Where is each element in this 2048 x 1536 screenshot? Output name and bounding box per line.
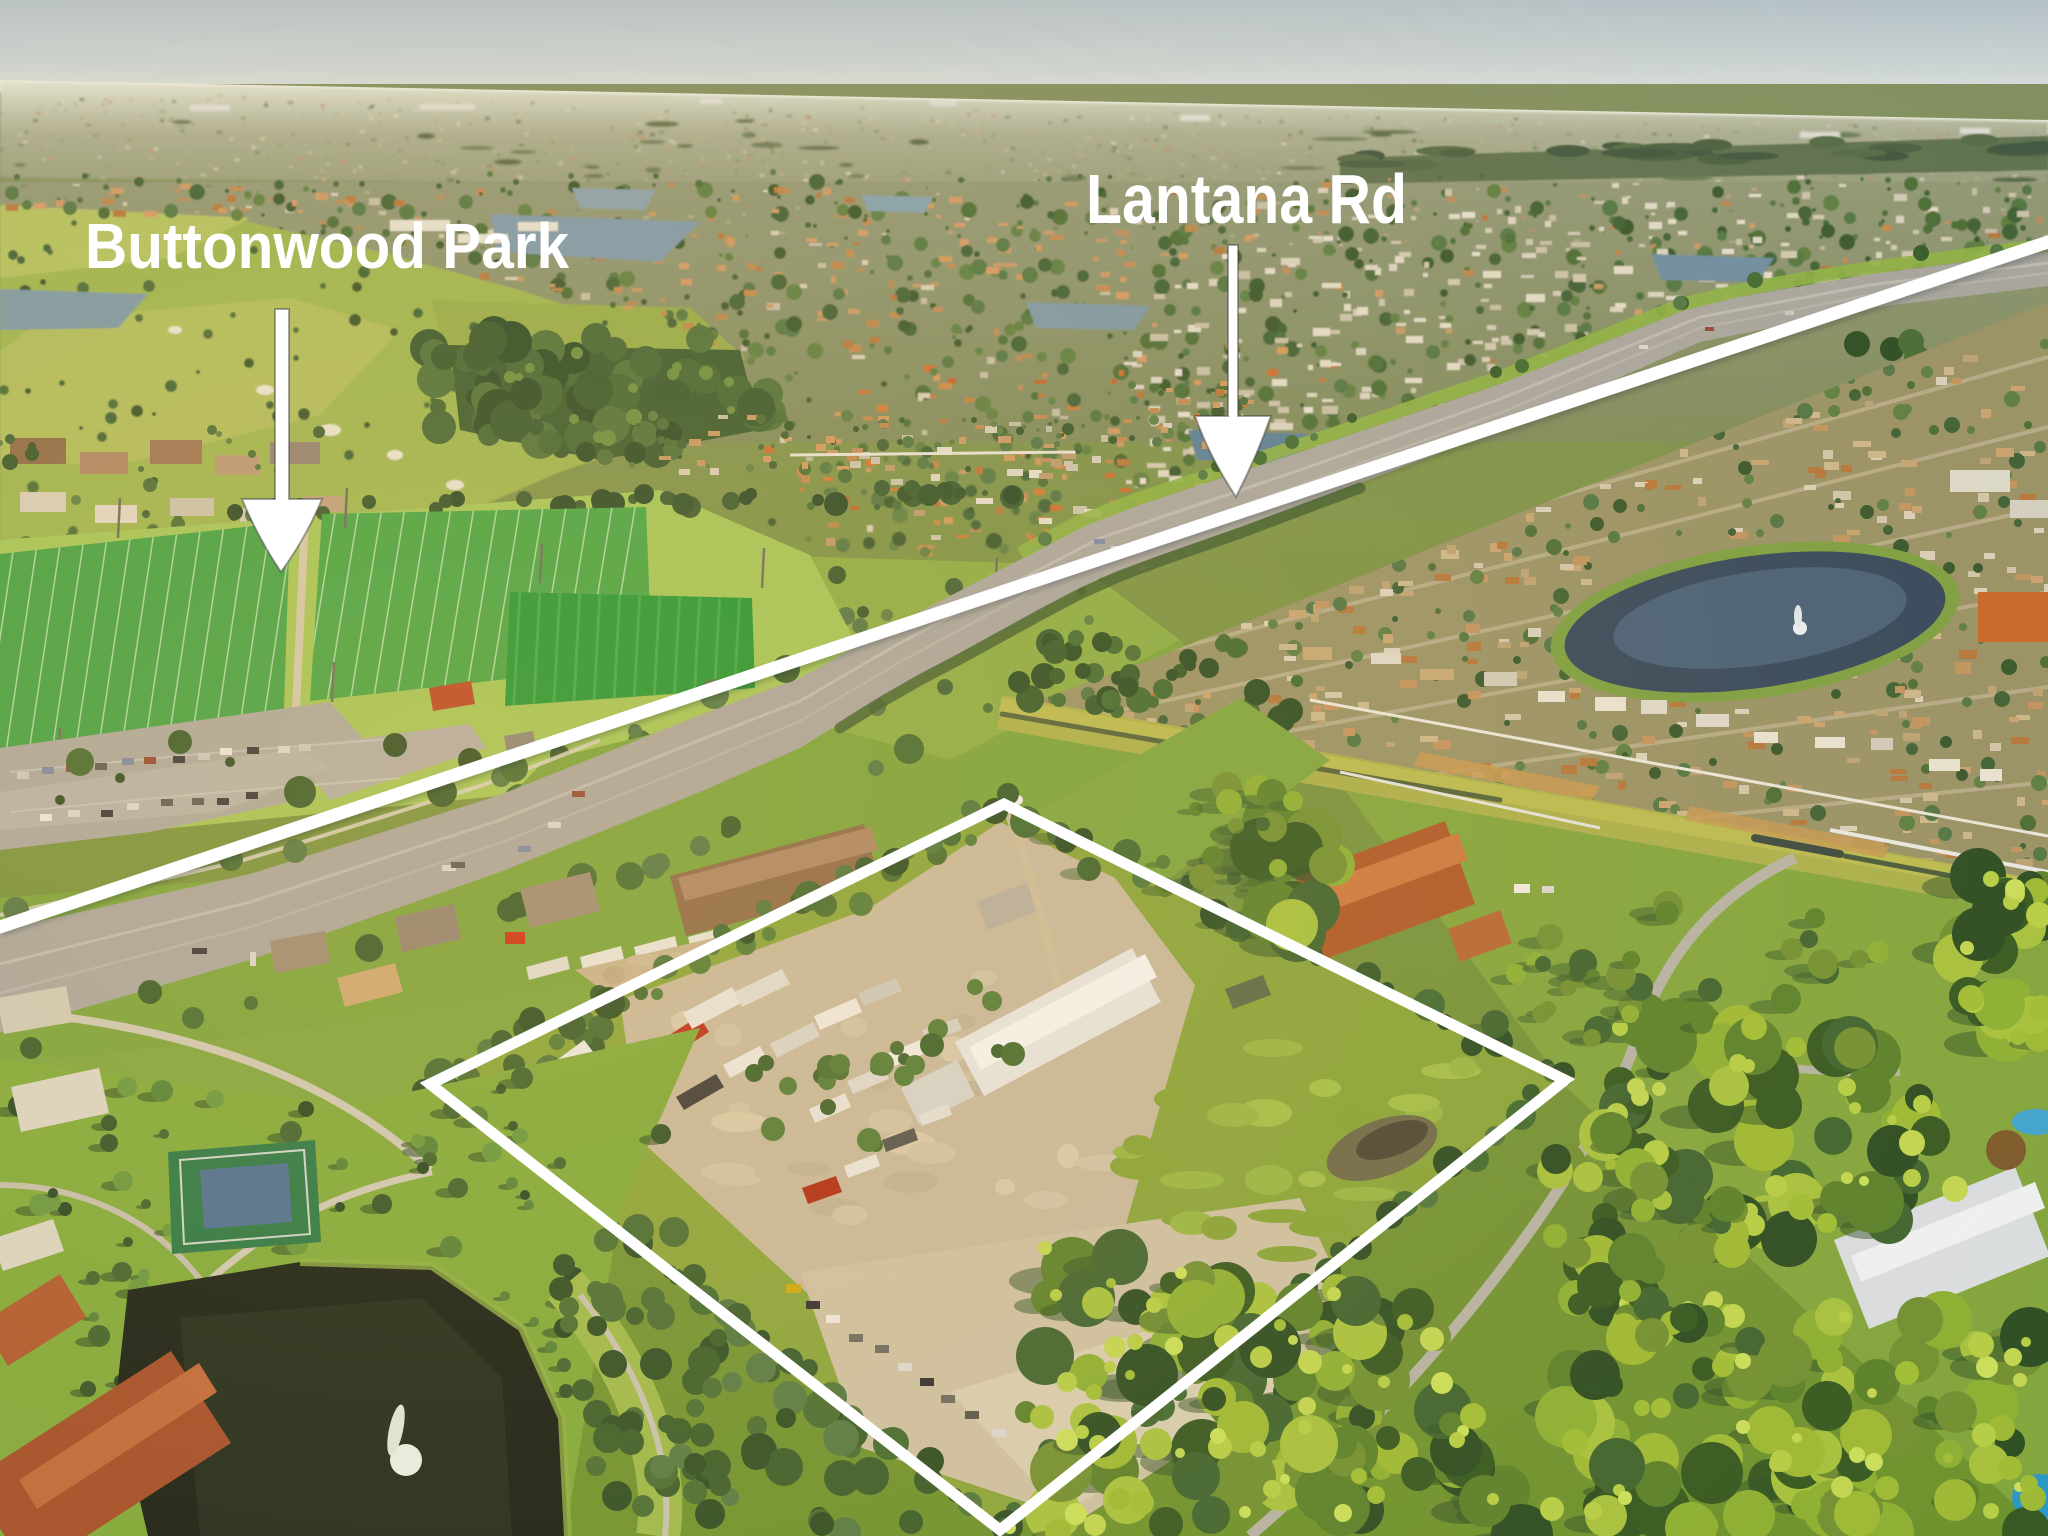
svg-text:Lantana Rd: Lantana Rd: [1086, 160, 1407, 238]
svg-text:Buttonwood Park: Buttonwood Park: [85, 210, 569, 282]
